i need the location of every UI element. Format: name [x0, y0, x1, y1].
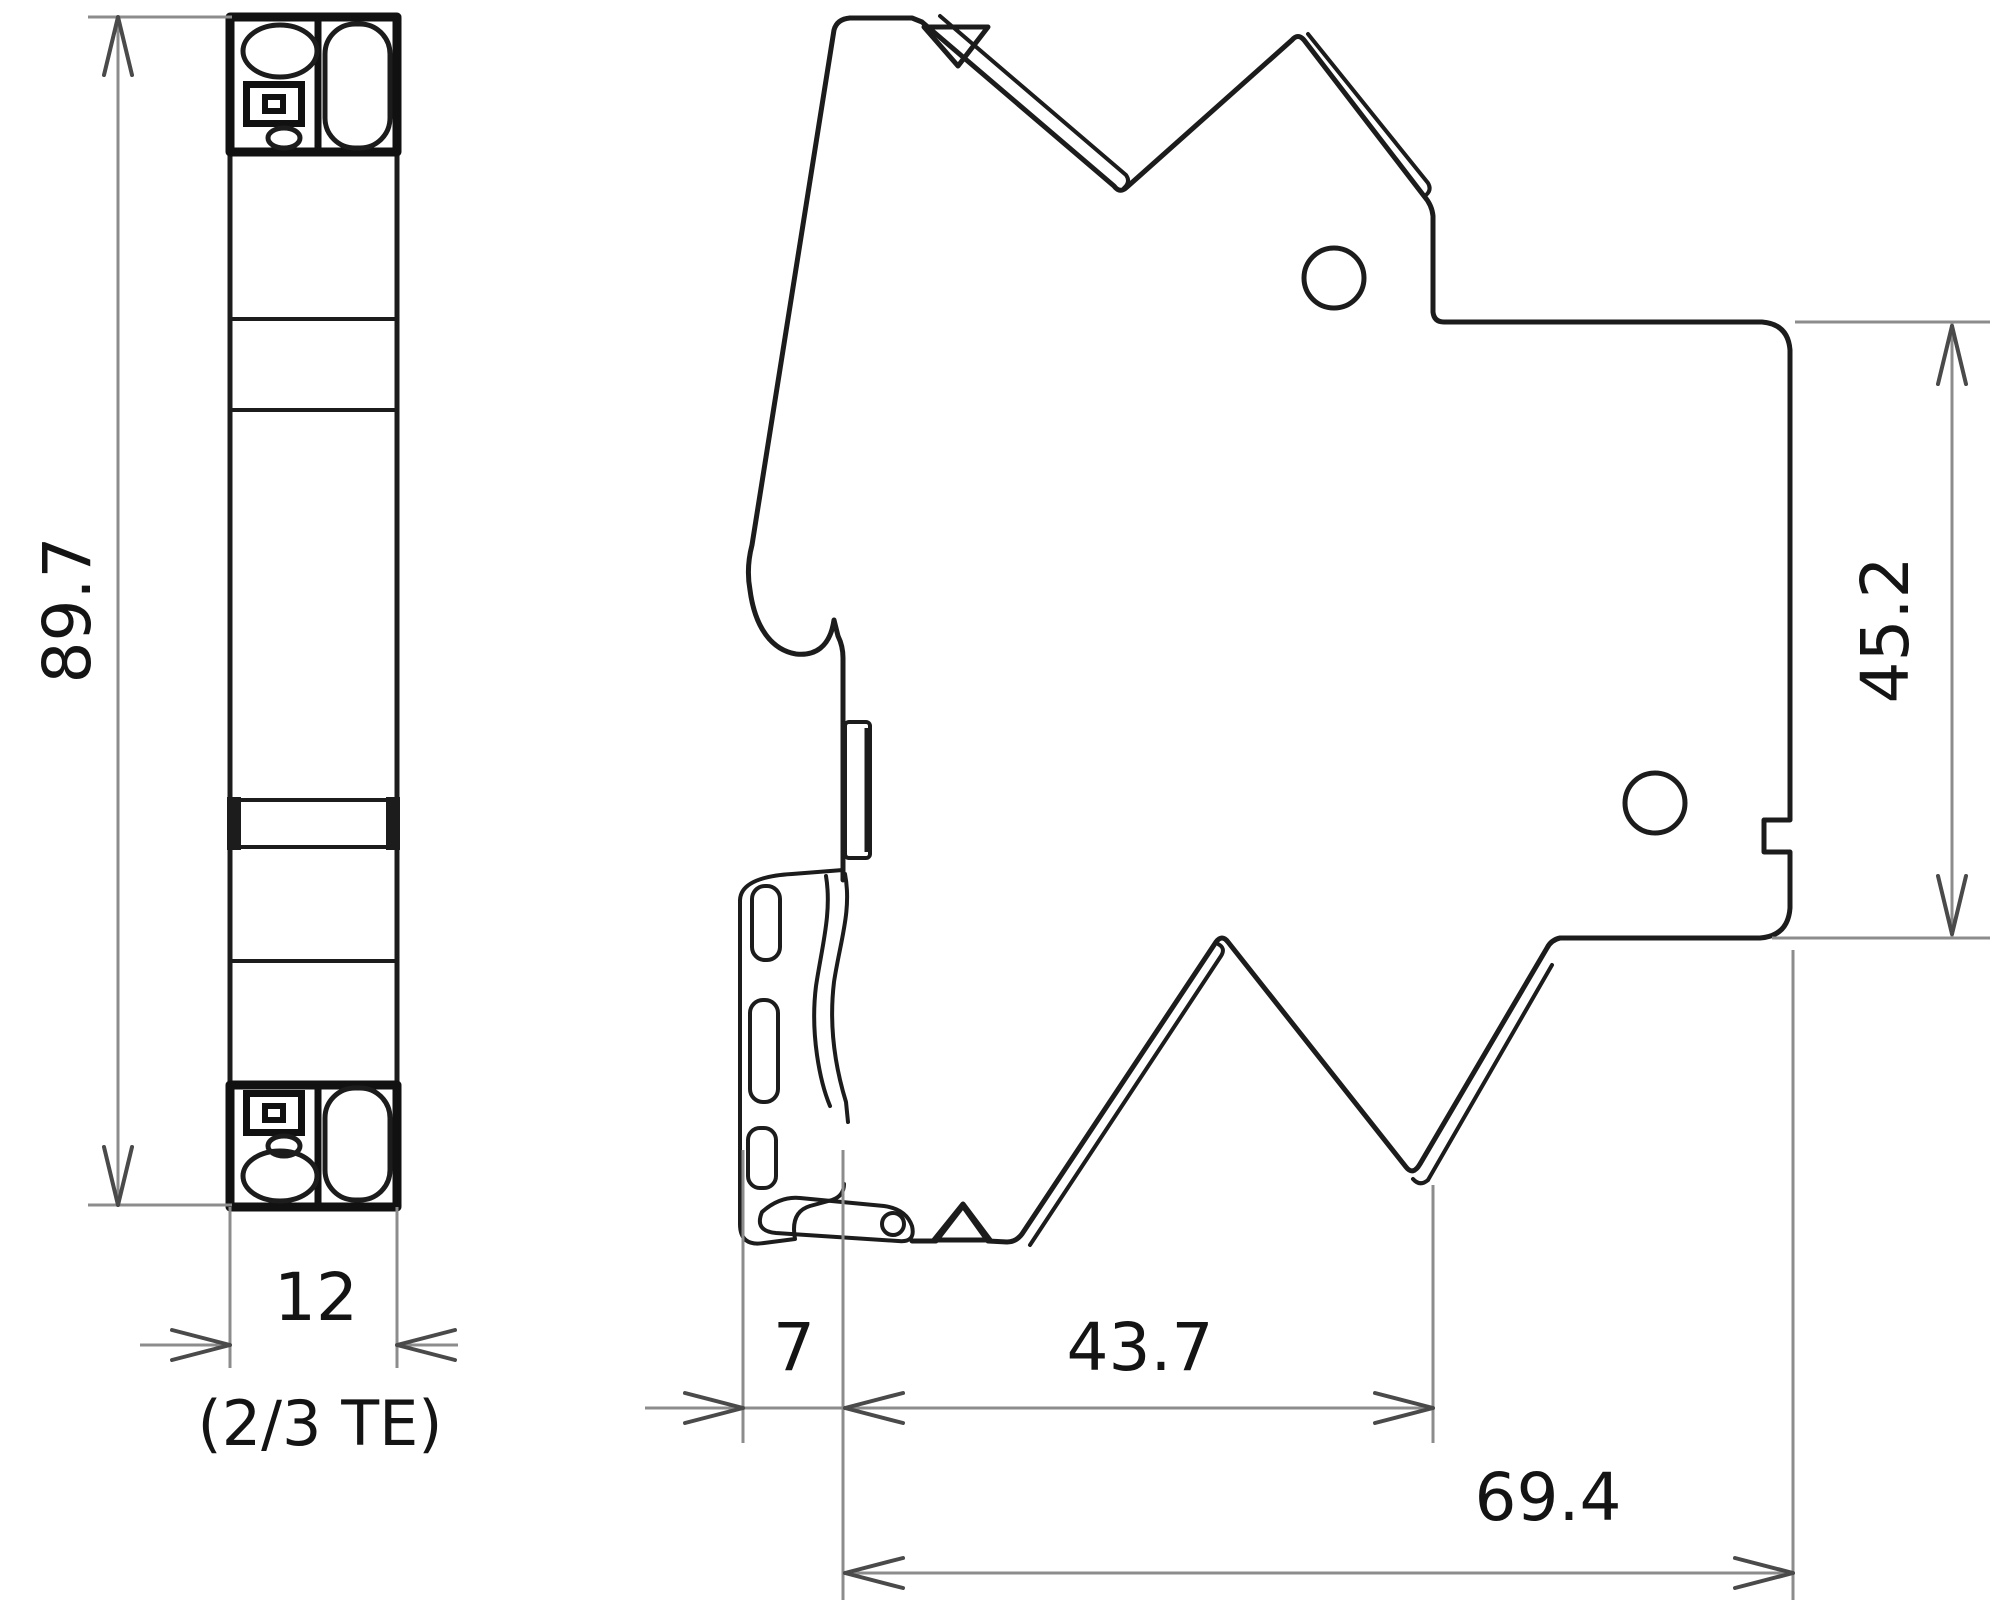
- front-height-label: 89.7: [29, 537, 106, 684]
- dimension-12: 12 (2/3 TE): [140, 1207, 458, 1460]
- front-view: [227, 17, 400, 1207]
- front-width-note-label: (2/3 TE): [198, 1387, 443, 1460]
- side-view: [740, 16, 1790, 1245]
- dimension-drawing-svg: 89.7 12 (2/3 TE) 45.2 7 43.7 69.4: [0, 0, 2000, 1619]
- small-screw-icon: [268, 128, 300, 148]
- side-body-depth-label: 43.7: [1067, 1309, 1214, 1386]
- front-top-terminal: [230, 17, 397, 152]
- front-bottom-terminal: [230, 1085, 397, 1207]
- front-body-outline: [230, 17, 397, 1207]
- side-right-height-label: 45.2: [1847, 557, 1924, 704]
- clip-slot: [748, 1128, 776, 1188]
- clip-foot-pin: [882, 1213, 904, 1235]
- side-clip-depth-label: 7: [773, 1309, 815, 1386]
- terminal-slot-icon: [325, 24, 390, 148]
- wire-clamp-icon: [243, 81, 305, 127]
- wire-clamp-icon: [243, 1090, 305, 1136]
- screw-hole-icon: [1304, 248, 1364, 308]
- screw-head-icon: [243, 1151, 317, 1201]
- din-rail-clip: [740, 870, 913, 1244]
- side-total-depth-label: 69.4: [1475, 1459, 1622, 1536]
- groove-lines: [940, 16, 1552, 1245]
- dimension-89-7: 89.7: [29, 17, 232, 1205]
- side-left-edge: [748, 18, 850, 880]
- clip-slot: [750, 1000, 778, 1102]
- side-body-outline: [850, 18, 1790, 1242]
- screw-hole-icon: [1625, 773, 1685, 833]
- front-division-lines: [227, 319, 400, 961]
- terminal-slot-icon: [325, 1088, 390, 1200]
- clip-slot: [752, 886, 780, 960]
- front-width-label: 12: [274, 1259, 358, 1336]
- dimension-69-4: 69.4: [845, 950, 1793, 1600]
- dimension-45-2: 45.2: [1772, 322, 1990, 938]
- dimension-row-7-43-7: 7 43.7: [645, 1150, 1433, 1600]
- drawing-canvas: 89.7 12 (2/3 TE) 45.2 7 43.7 69.4: [0, 0, 2000, 1619]
- clip-spring-arm: [832, 874, 848, 1122]
- rail-guide-bar: [845, 722, 870, 858]
- clip-spring-arm-inner: [814, 876, 830, 1106]
- screw-head-icon: [243, 25, 317, 77]
